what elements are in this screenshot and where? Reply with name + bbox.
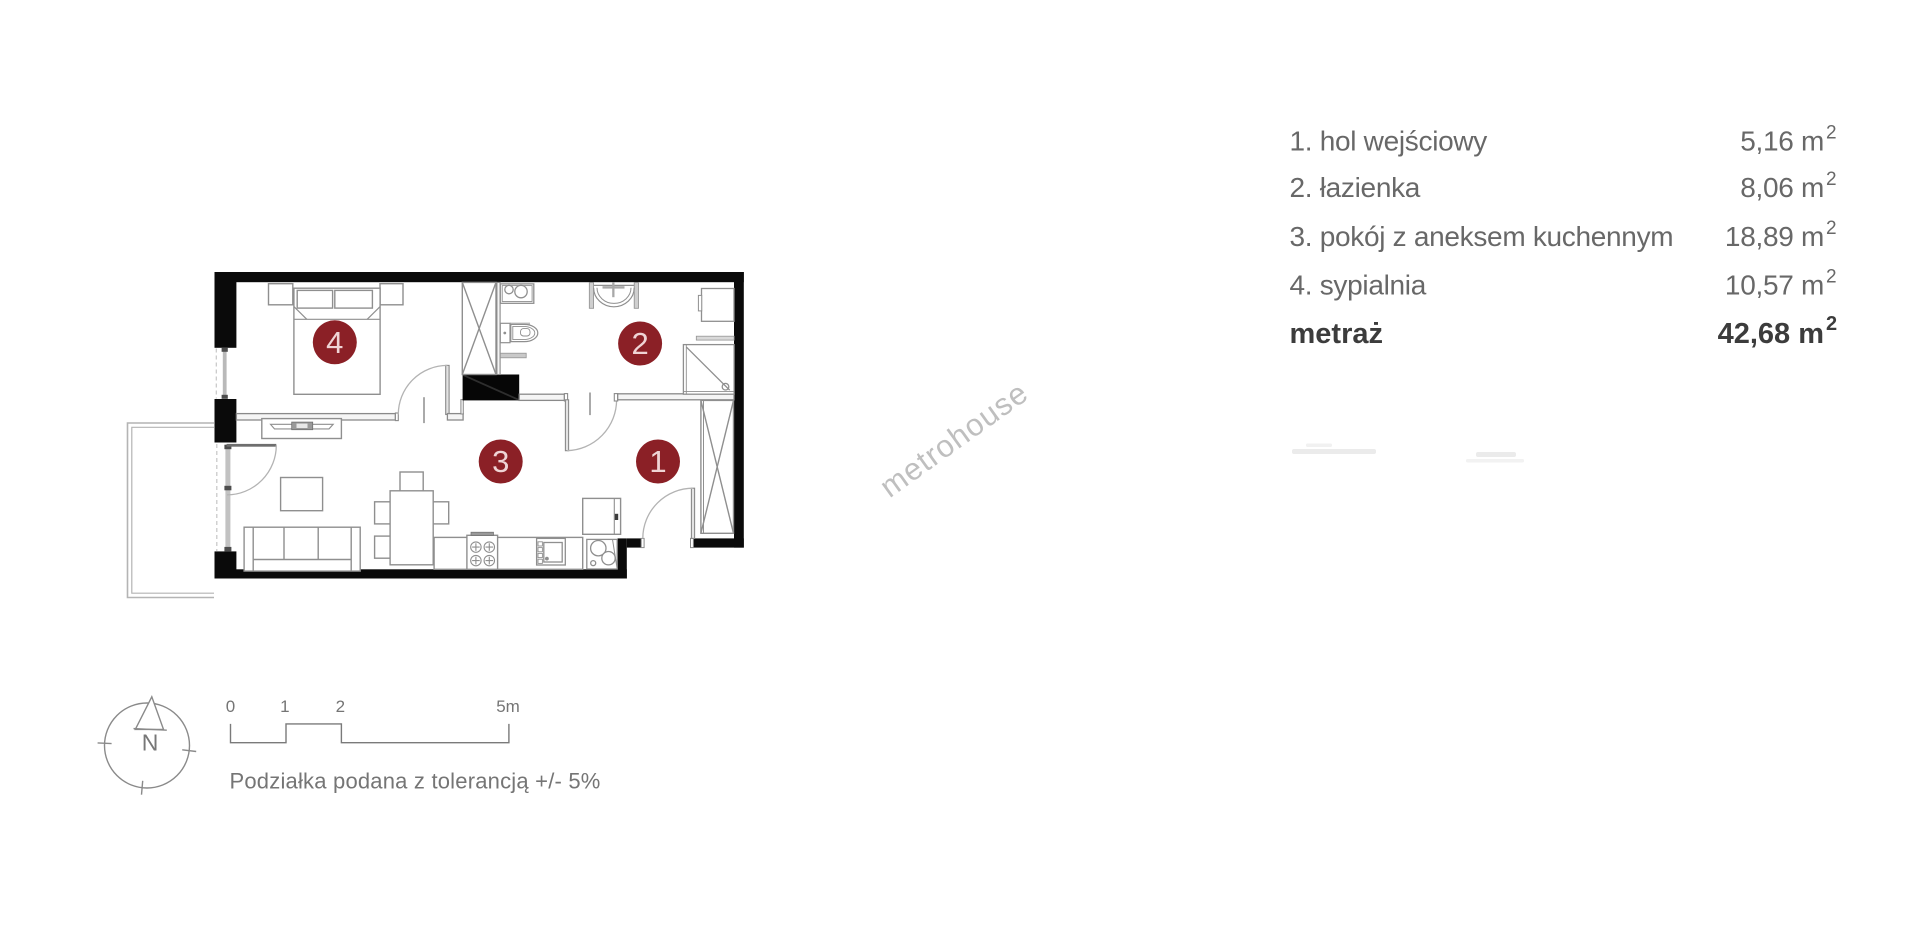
svg-text:4. sypialnia: 4. sypialnia bbox=[1290, 270, 1427, 301]
svg-text:2: 2 bbox=[1826, 218, 1836, 239]
svg-text:Podziałka podana z tolerancją: Podziałka podana z tolerancją +/- 5% bbox=[230, 769, 601, 794]
svg-text:2: 2 bbox=[631, 326, 648, 361]
svg-text:2: 2 bbox=[1826, 123, 1836, 144]
svg-text:3. pokój z aneksem kuchennym: 3. pokój z aneksem kuchennym bbox=[1290, 221, 1674, 252]
svg-text:2: 2 bbox=[1826, 313, 1837, 335]
svg-text:N: N bbox=[142, 730, 159, 756]
svg-text:8,06 m: 8,06 m bbox=[1740, 172, 1824, 203]
svg-text:2. łazienka: 2. łazienka bbox=[1290, 172, 1421, 203]
svg-text:5,16 m: 5,16 m bbox=[1740, 126, 1824, 157]
svg-text:10,57 m: 10,57 m bbox=[1725, 270, 1824, 301]
svg-text:metraż: metraż bbox=[1290, 318, 1384, 350]
svg-text:3: 3 bbox=[492, 444, 509, 479]
svg-text:2: 2 bbox=[1826, 267, 1836, 288]
svg-text:1: 1 bbox=[280, 697, 289, 716]
svg-text:42,68 m: 42,68 m bbox=[1718, 318, 1824, 350]
svg-text:4: 4 bbox=[326, 325, 343, 360]
svg-text:1: 1 bbox=[649, 444, 666, 479]
svg-text:2: 2 bbox=[336, 697, 345, 716]
svg-text:18,89 m: 18,89 m bbox=[1725, 221, 1824, 252]
svg-text:1. hol wejściowy: 1. hol wejściowy bbox=[1290, 126, 1488, 157]
svg-text:2: 2 bbox=[1826, 169, 1836, 190]
svg-text:0: 0 bbox=[226, 697, 235, 716]
svg-text:5m: 5m bbox=[496, 697, 520, 716]
